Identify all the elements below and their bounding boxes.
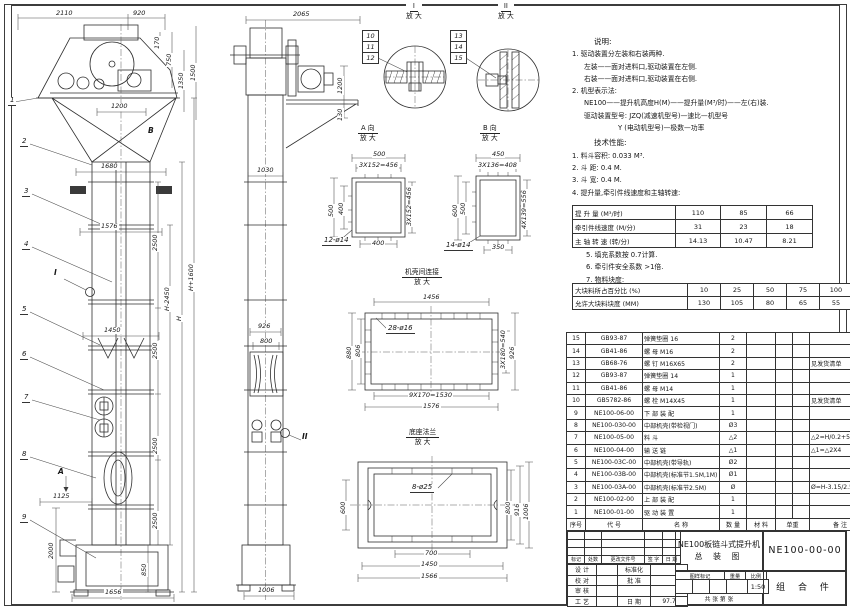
notes-panel: 说明: 1. 驱动装置分左装和右装两种. 左装——面对进料口,驱动装置在左侧. … [572,36,840,199]
dim-label: 2500 [152,436,159,455]
bom-row: 5NE100-03C-00中部机壳(带导轨)Ø2 [567,456,850,468]
drawing-number: NE100-00-00 [763,531,847,571]
bom-row: 6NE100-04-00输 送 链△1△1=△2X4 [567,444,850,456]
part-type: 组 合 件 [763,571,847,606]
callout-box: 15 [450,52,467,64]
view-zoom-label: 放 大 [482,134,498,143]
bom-row: 13GB68-76螺 钉 M16X652见发货清单 [567,357,850,369]
marker-b: B [148,127,154,135]
notes-heading: 说明: [572,36,840,48]
dim-label: 1576 [422,403,441,410]
marker-a: A [58,468,64,476]
section-i-title: I 放 大 [406,2,422,21]
note-line: 驱动装置型号: JZQ(减速机型号)—速比—机型号 [572,110,840,122]
bom-row: 3NE100-03A-00中部机壳(标准节2.5M)ØØ=H-3.15/2.5 [567,481,850,493]
revision-empty-row [568,548,681,556]
dim-label: 1656 [104,589,123,596]
bom-row: 11GB41-86螺 母 M141 [567,382,850,394]
dim-label: 500 [460,202,467,216]
hole-callout: 28-ø16 [386,325,415,334]
note-line: 1. 驱动装置分左装和右装两种. [572,48,840,60]
table-row: 牵引件线速度 (M/分) 31 23 18 [573,220,813,234]
perf-item: 1. 料斗容积: 0.033 M³. [572,150,840,162]
dim-label: 850 [141,563,148,577]
dim-label: 600 [452,204,459,218]
bom-table: 15GB93-87弹簧垫圈 162 14GB41-86螺 母 M162 13GB… [566,332,850,531]
section-ii-title: II 放 大 [498,2,514,21]
lump-size-table: 大块料所占百分比 (%) 10 25 50 75 100 允许大块料块度 (MM… [572,283,850,310]
marker-i: I [54,269,57,277]
view-name: A 向 [358,124,378,134]
dim-label: 800 [505,501,512,515]
dim-label: H-2450 [164,286,171,312]
view-zoom-label: 放 大 [415,438,431,447]
callout-number: 7 [22,394,30,403]
view-name: B 向 [480,124,500,134]
dim-label: 350 [491,244,505,251]
dim-label: 1450 [103,327,122,334]
table-row: 主 轴 转 速 (转/分) 14.13 10.47 8.21 [573,234,813,248]
dim-label: H [176,315,183,322]
detail-a-title: A 向 放 大 [358,124,378,143]
bom-row: 10GB5782-86螺 栓 M14X451见发货清单 [567,394,850,406]
table-row: 提 升 量 (M³/时) 110 85 66 [573,206,813,220]
bom-row: 4NE100-03B-00中部机壳(标准节1.5M,1M)Ø1 [567,469,850,481]
dim-label: 806 [355,344,362,358]
dim-label: 2500 [152,511,159,530]
dim-label: 600 [340,501,347,515]
revision-header-row: 标记处数更改文件号签 字日 期 [568,556,681,564]
dim-label: 1030 [256,167,275,174]
note-line: 左装——面对进料口,驱动装置在左侧. [572,61,840,73]
view-zoom-label: 放 大 [498,12,514,21]
callout-box: 12 [362,52,379,64]
dim-label: 800 [259,338,273,345]
dim-label: 130 [337,108,344,122]
dim-label: 1125 [52,493,71,500]
dim-label: 1500 [190,63,197,82]
dim-label: 1200 [337,76,344,95]
dim-label: 3X152=456 [358,162,399,169]
dim-label: 2000 [48,541,55,560]
dim-label: 1450 [420,561,439,568]
bom-row: 12GB93-87弹簧垫圈 141 [567,370,850,382]
callout-number: 2 [20,138,28,147]
view-name: I [410,2,418,12]
note-line: NE100——提升机高度H(M)——提升量(M³/时)——左(右)装. [572,97,840,109]
dim-label: 9X170=1530 [408,392,453,399]
detail-b-title: B 向 放 大 [480,124,500,143]
dim-label: 450 [491,151,505,158]
callout-number: 6 [20,351,28,360]
dim-label: 2500 [152,341,159,360]
dim-label: 1006 [257,587,276,594]
bom-row: 15GB93-87弹簧垫圈 162 [567,333,850,345]
dim-label: 3X180=540 [500,329,507,370]
flange-detail-title: 机壳间连接 放 大 [402,268,442,287]
revision-empty-row [568,540,681,548]
bom-row: 1NE100-01-00驱 动 装 置1 [567,506,850,518]
drawing-sheet: 2110 920 170 750 1350 1500 1200 1680 250… [0,0,850,609]
dim-label: 920 [132,10,146,17]
callout-number: 3 [22,188,30,197]
dim-label: 1566 [420,573,439,580]
note-line: 2. 机型表示法: [572,85,840,97]
dim-label: 1680 [100,163,119,170]
dim-label: 2110 [55,10,74,17]
note-line: Y (电动机型号)—极数—功率 [572,122,840,134]
dim-label: 2500 [152,233,159,252]
signature-table: 设 计标准化 校 对批 准 审 核 工 艺日 期97.7 [567,564,688,607]
hole-callout: 14-ø14 [444,242,473,251]
bom-row: 9NE100-06-00下 部 装 配1 [567,407,850,419]
signature-row: 校 对批 准 [568,575,688,586]
signature-row: 工 艺日 期97.7 [568,596,688,607]
bom-row: 7NE100-05-00料 斗△2△2=H/0.2+5.75 [567,432,850,444]
table-row: 大块料所占百分比 (%) 10 25 50 75 100 [573,284,850,297]
view-name: 底座法兰 [406,428,439,438]
view-zoom-label: 放 大 [406,12,422,21]
hole-callout: 8-ø25 [410,484,434,493]
view-zoom-label: 放 大 [360,134,376,143]
revision-table: 标记处数更改文件号签 字日 期 [567,531,681,564]
drawing-title: NE100板链斗式提升机 总 装 图 [675,531,763,571]
view-zoom-label: 放 大 [414,278,430,287]
dim-label: 500 [372,151,386,158]
perf-item: 3. 斗 宽: 0.4 M. [572,174,840,186]
dim-label: 1200 [110,103,129,110]
dim-label: 170 [154,36,161,50]
dim-label: 750 [166,53,173,67]
dim-label: 400 [371,240,385,247]
dim-label: 926 [257,323,271,330]
bom-row: 14GB41-86螺 母 M162 [567,345,850,357]
dim-label: 400 [338,202,345,216]
callout-number: 8 [20,451,28,460]
perf-item: 2. 斗 距: 0.4 M. [572,162,840,174]
stamp-boxes: 1:50 [675,579,769,594]
signature-row: 审 核 [568,586,688,597]
dim-label: 2065 [292,11,311,18]
dim-label: 1456 [422,294,441,301]
note-line: 右装——面对进料口,驱动装置在右侧. [572,73,840,85]
dim-label: 1006 [523,502,530,521]
revision-empty-row [568,532,681,540]
perf-item: 6. 牵引件安全系数 >1倍. [586,261,663,273]
dim-label: 3X136=408 [477,162,518,169]
signature-row: 设 计标准化 [568,565,688,576]
callout-number: 1 [8,97,16,106]
dim-label: H+1600 [188,263,195,292]
dim-label: 926 [509,346,516,360]
base-detail-title: 底座法兰 放 大 [406,428,439,447]
perf-item: 5. 填充系数按 0.7计算. [586,249,663,261]
table-row: 允许大块料块度 (MM) 130 105 80 65 55 [573,297,850,310]
view-name: II [501,2,511,12]
bom-row: 8NE100-030-00中部机壳(带检视门)Ø3 [567,419,850,431]
dim-label: 500 [328,204,335,218]
bom-row: 2NE100-02-00上 部 装 配1 [567,494,850,506]
marker-ii: II [302,433,308,441]
performance-table: 提 升 量 (M³/时) 110 85 66 牵引件线速度 (M/分) 31 2… [572,205,813,248]
drawing-title-line1: NE100板链斗式提升机 [678,539,760,551]
dim-label: 700 [424,550,438,557]
dim-label: 880 [346,346,353,360]
hole-callout: 12-ø14 [322,237,351,246]
dim-label: 1576 [100,223,119,230]
dim-label: 3X152=456 [406,186,413,227]
drawing-title-line2: 总 装 图 [694,551,743,563]
callout-number: 9 [20,514,28,523]
notes-panel-2: 5. 填充系数按 0.7计算. 6. 牵引件安全系数 >1倍. 7. 物料块度: [586,249,663,286]
callout-number: 5 [20,306,28,315]
title-block: 标记处数更改文件号签 字日 期 设 计标准化 校 对批 准 审 核 工 艺日 期… [566,530,846,605]
performance-heading: 技术性能: [572,137,840,149]
dim-label: 916 [514,503,521,517]
bom-header-row: 序号代 号名 称数 量材 料单重备 注 [567,518,850,530]
perf-item: 4. 提升量,牵引件线速度和主轴转速: [572,187,840,199]
view-name: 机壳间连接 [402,268,442,278]
sheet-count: 共 张 第 张 [675,593,763,606]
dim-label: 1350 [178,71,185,90]
dim-label: 4X139=556 [521,189,528,230]
callout-number: 4 [22,241,30,250]
